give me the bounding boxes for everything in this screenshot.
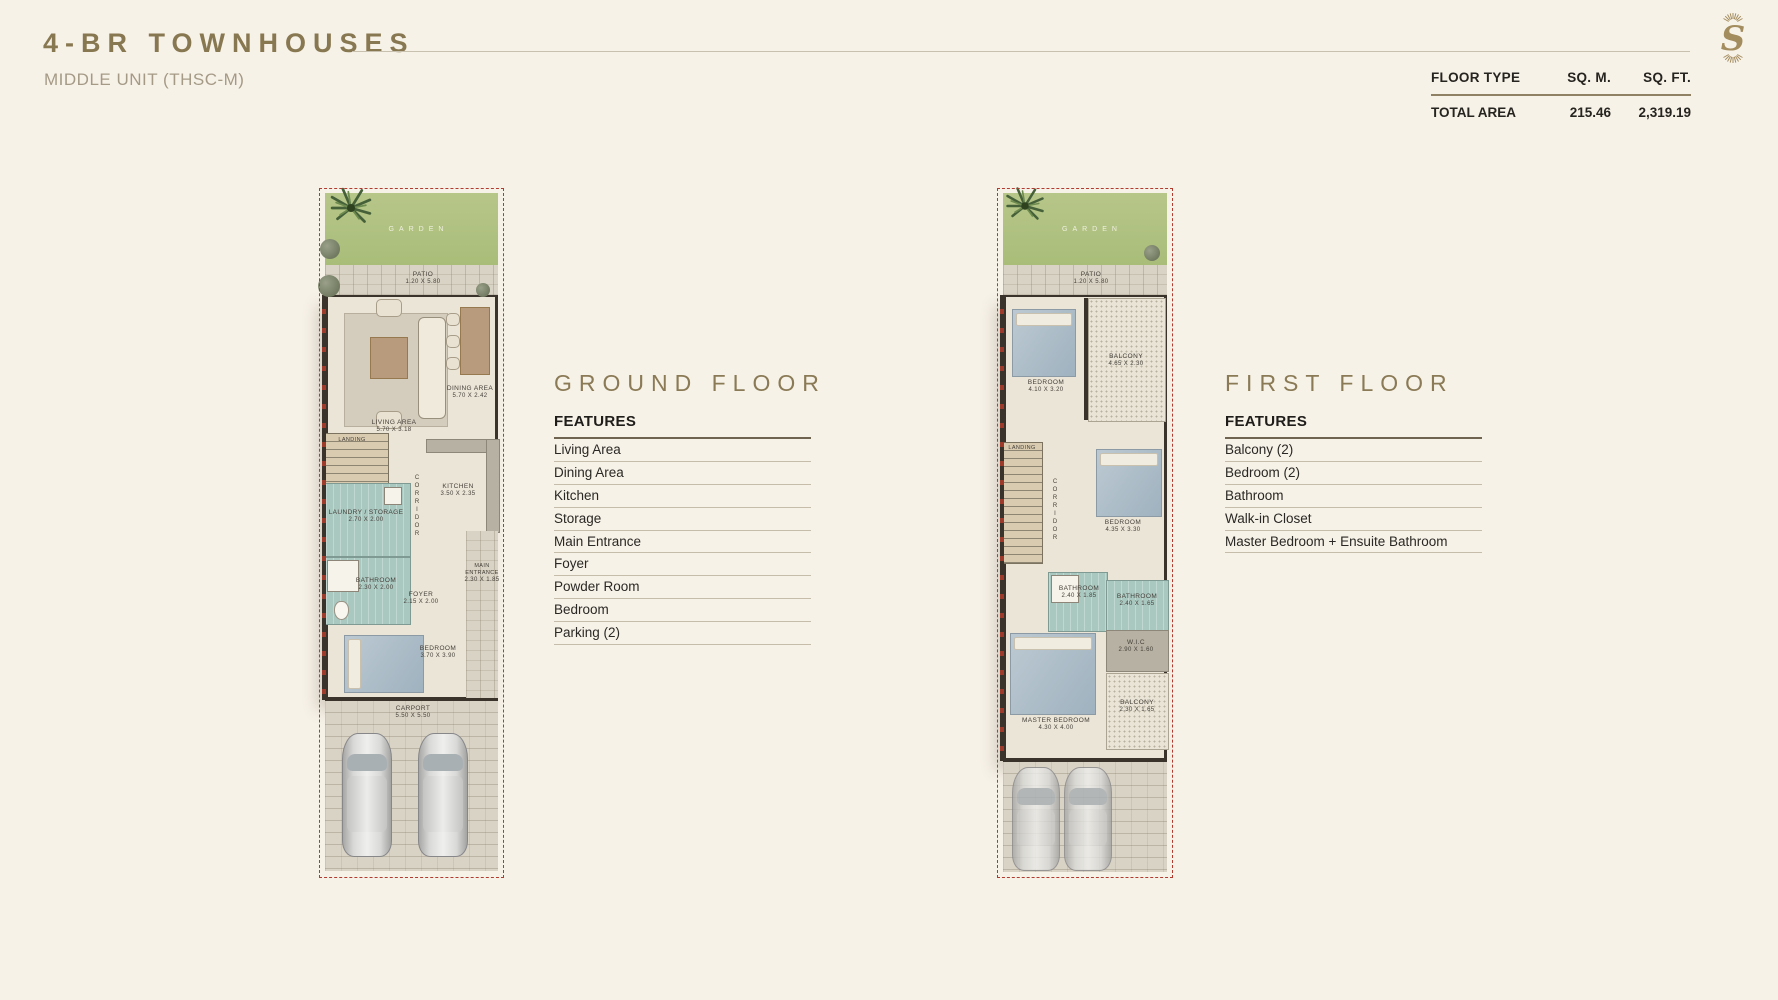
room-label-balcony2: BALCONY 2.30 X 1.65 (1119, 699, 1154, 715)
room-label-wic: W.I.C 2.90 X 1.60 (1118, 639, 1153, 655)
area-table-total-row: TOTAL AREA 215.46 2,319.19 (1431, 96, 1691, 120)
feature-item: Walk-in Closet (1225, 508, 1482, 531)
features-title: FEATURES (1225, 413, 1482, 439)
feature-item: Bedroom (554, 599, 811, 622)
room-label-dining: DINING AREA 5.70 X 2.42 (447, 385, 493, 401)
room-label-bedroom: BEDROOM 3.70 X 3.90 (420, 645, 456, 661)
car (342, 733, 392, 857)
room-label-foyer: FOYER 2.15 X 2.00 (403, 591, 438, 607)
room-label-master: MASTER BEDROOM 4.30 X 4.00 (1011, 717, 1101, 733)
feature-item: Storage (554, 508, 811, 531)
room-label-corridor: CORRIDOR (1052, 479, 1058, 543)
toilet (334, 601, 349, 620)
room-label-bathroom2: BATHROOM 2.40 X 1.65 (1117, 593, 1157, 609)
features-title: FEATURES (554, 413, 811, 439)
room-label-patio: PATIO 1.20 X 5.80 (405, 271, 440, 287)
feature-item: Parking (2) (554, 622, 811, 645)
wall (1084, 298, 1088, 420)
area-table: FLOOR TYPE SQ. M. SQ. FT. TOTAL AREA 215… (1431, 70, 1691, 120)
stairs (1003, 442, 1043, 564)
feature-item: Master Bedroom + Ensuite Bathroom (1225, 531, 1482, 554)
total-area-label: TOTAL AREA (1431, 105, 1539, 120)
garden-label: GARDEN (375, 226, 449, 233)
room-label-bedroom1: BEDROOM 4.10 X 3.20 (1028, 379, 1064, 395)
room-label-bathroom: BATHROOM 2.30 X 2.00 (356, 577, 396, 593)
feature-item: Balcony (2) (1225, 439, 1482, 462)
room-label-kitchen: KITCHEN 3.50 X 2.35 (440, 483, 475, 499)
ground-features-list: Living Area Dining Area Kitchen Storage … (554, 439, 811, 645)
page-title: 4-BR TOWNHOUSES (43, 28, 415, 59)
dining-chair (446, 357, 460, 370)
wall (325, 698, 498, 701)
room-label-bathroom1: BATHROOM 2.40 X 1.85 (1059, 585, 1099, 601)
armchair (376, 299, 402, 317)
room-label-corridor: CORRIDOR (414, 475, 420, 539)
col-floor-type: FLOOR TYPE (1431, 70, 1539, 85)
room-label-carport: CARPORT 5.50 X 5.50 (395, 705, 430, 721)
total-area-sqft: 2,319.19 (1617, 105, 1691, 120)
brand-logo-letter: S (1721, 19, 1746, 59)
bed (1096, 449, 1162, 517)
bed (344, 635, 424, 693)
shower (327, 560, 359, 592)
total-area-sqm: 215.46 (1545, 105, 1611, 120)
feature-item: Main Entrance (554, 531, 811, 554)
car (1064, 767, 1112, 871)
dining-table (460, 307, 490, 375)
feature-item: Living Area (554, 439, 811, 462)
shrub-icon (318, 275, 340, 297)
palm-tree-icon (1000, 181, 1050, 231)
room-label-landing: LANDING (338, 437, 365, 444)
bed (1012, 309, 1076, 377)
room-label-laundry: LAUNDRY / STORAGE 2.70 X 2.00 (327, 509, 405, 525)
brand-logo-icon: S (1706, 8, 1760, 68)
dining-chair (446, 313, 460, 326)
kitchen-counter (486, 439, 500, 533)
washer (384, 487, 402, 505)
dining-chair (446, 335, 460, 348)
wall (1003, 759, 1167, 762)
feature-item: Bathroom (1225, 485, 1482, 508)
first-floor-plan: GARDEN PATIO 1.20 X 5.80 BEDROOM 4.10 X … (996, 187, 1174, 879)
left-wall (322, 295, 326, 700)
room-label-patio: PATIO 1.20 X 5.80 (1073, 271, 1108, 287)
left-wall (1000, 295, 1004, 761)
first-features-list: Balcony (2) Bedroom (2) Bathroom Walk-in… (1225, 439, 1482, 553)
car (1012, 767, 1060, 871)
sofa (418, 317, 446, 419)
car (418, 733, 468, 857)
bed (1010, 633, 1096, 715)
feature-item: Powder Room (554, 576, 811, 599)
palm-tree-icon (324, 181, 378, 235)
col-sqm: SQ. M. (1545, 70, 1611, 85)
feature-item: Dining Area (554, 462, 811, 485)
area-table-header-row: FLOOR TYPE SQ. M. SQ. FT. (1431, 70, 1691, 96)
feature-item: Bedroom (2) (1225, 462, 1482, 485)
col-sqft: SQ. FT. (1617, 70, 1691, 85)
ground-floor-plan: GARDEN PATIO 1.20 X 5.80 LIVING AREA 5.7… (318, 187, 505, 879)
shrub-icon (320, 239, 340, 259)
room-label-landing: LANDING (1008, 445, 1035, 452)
garden-label: GARDEN (1048, 226, 1122, 233)
room-label-living: LIVING AREA 5.70 X 3.18 (372, 419, 417, 435)
ground-floor-heading: GROUND FLOOR (554, 370, 826, 397)
room-label-bedroom2: BEDROOM 4.35 X 3.30 (1105, 519, 1141, 535)
ground-floor-features: FEATURES Living Area Dining Area Kitchen… (554, 413, 811, 645)
feature-item: Kitchen (554, 485, 811, 508)
first-floor-heading: FIRST FLOOR (1225, 370, 1454, 397)
entry-path (466, 531, 498, 700)
room-label-balcony1: BALCONY 4.65 X 2.30 (1108, 353, 1143, 369)
page-subtitle: MIDDLE UNIT (THSC-M) (44, 70, 244, 90)
shrub-icon (476, 283, 490, 297)
shrub-icon (1144, 245, 1160, 261)
coffee-table (370, 337, 408, 379)
title-divider (352, 51, 1690, 52)
first-floor-features: FEATURES Balcony (2) Bedroom (2) Bathroo… (1225, 413, 1482, 553)
room-label-entrance: MAIN ENTRANCE 2.30 X 1.85 (462, 563, 502, 585)
feature-item: Foyer (554, 553, 811, 576)
